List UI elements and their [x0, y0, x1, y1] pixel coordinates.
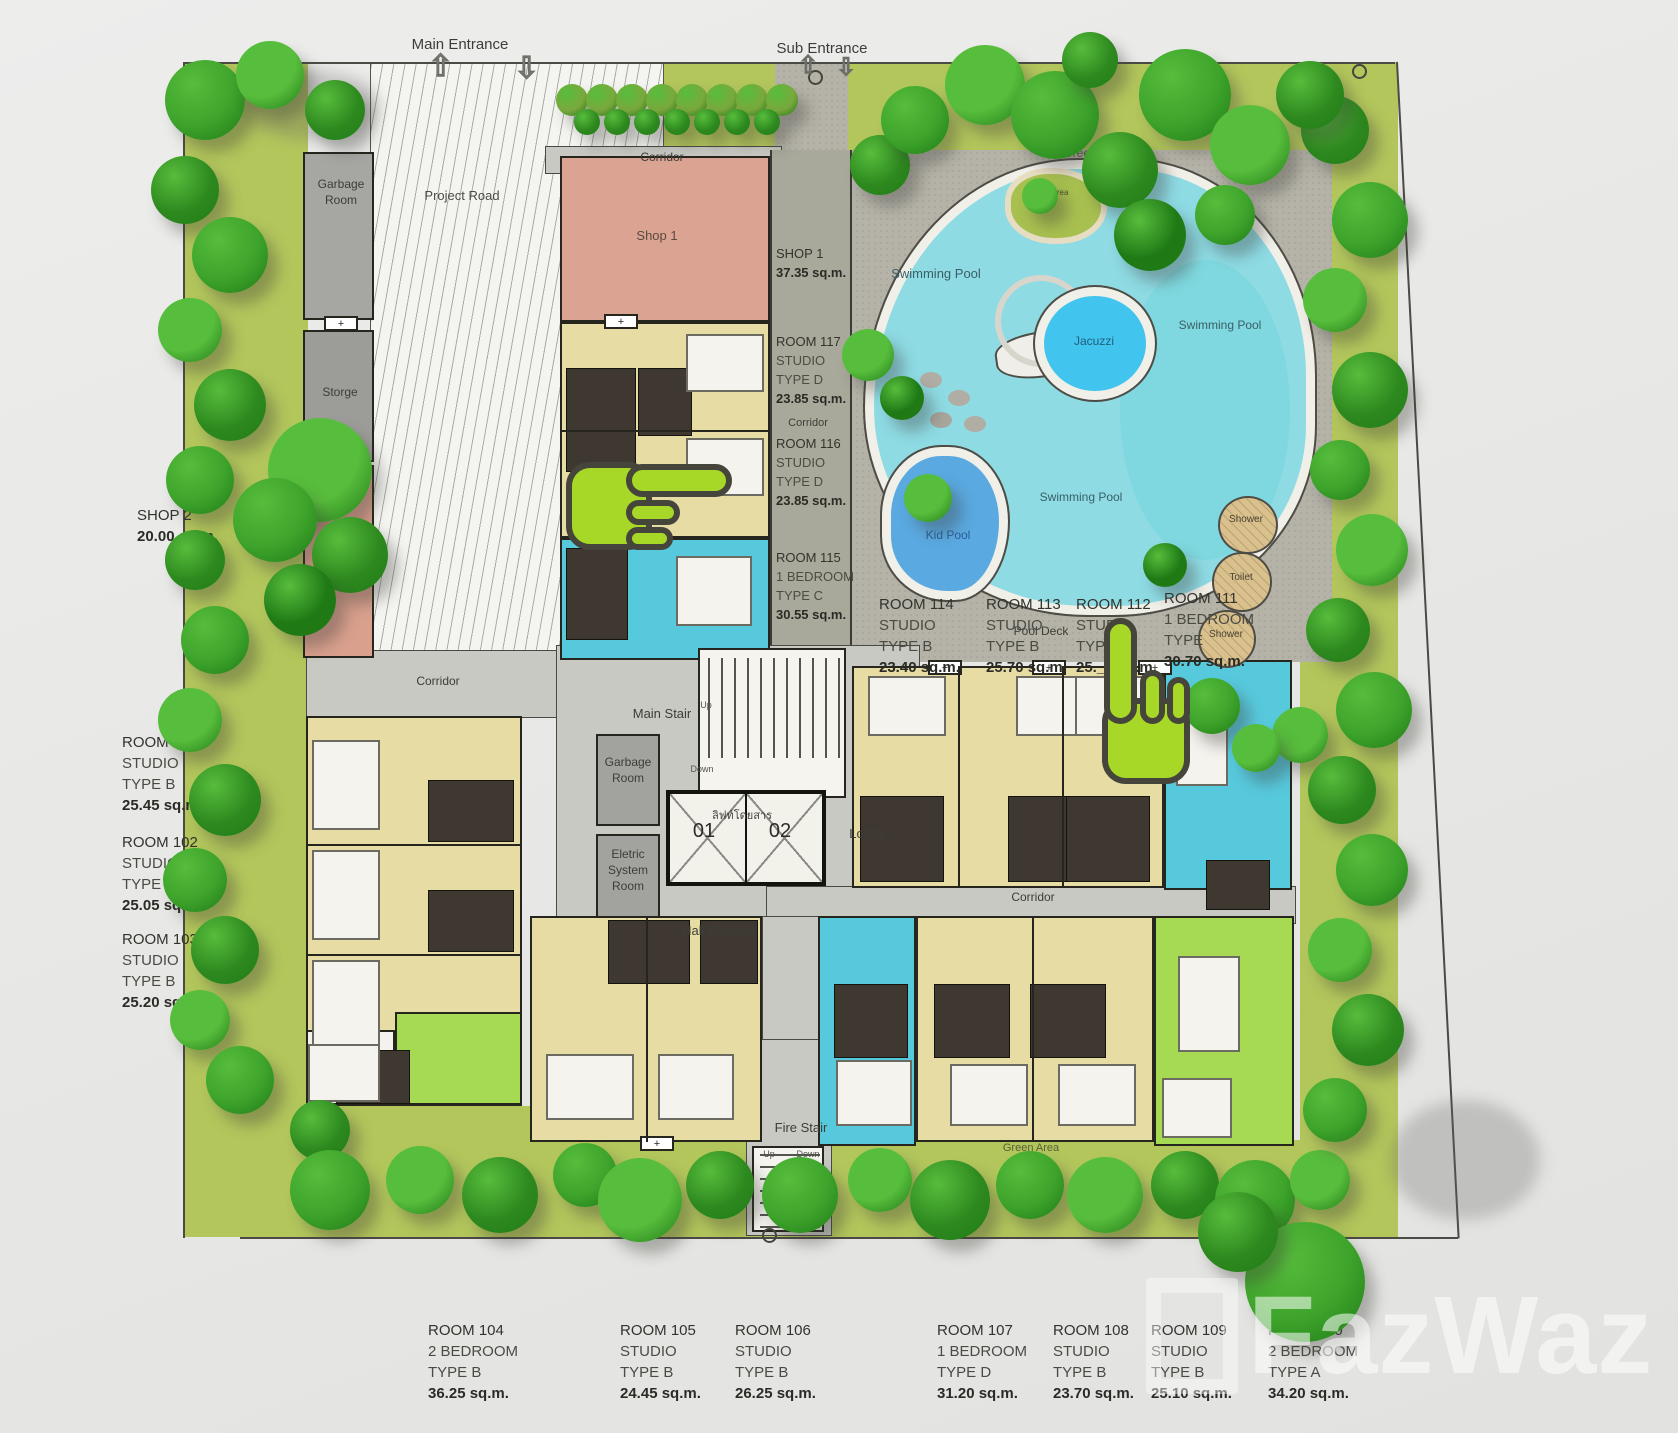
- bed-furniture: [1058, 1064, 1136, 1126]
- garbage-strip-label: Garbage Room: [306, 176, 376, 208]
- wall-line: [1032, 916, 1034, 1142]
- boundary-pin: [762, 1228, 777, 1243]
- tree: [206, 1046, 274, 1114]
- tree: [1303, 268, 1367, 332]
- tree: [724, 109, 750, 135]
- electric-core-label: Eletric System Room: [597, 846, 659, 894]
- wall-line: [560, 430, 770, 432]
- room-116-info: ROOM 116STUDIO TYPE D23.85 sq.m.: [776, 434, 846, 510]
- wall-line: [306, 954, 522, 956]
- fire-stair-up-label: Up: [763, 1149, 775, 1159]
- room-113-info: ROOM 113STUDIO TYPE B25.70 sq.m.: [986, 594, 1067, 678]
- grass-bottom-left: [235, 1106, 535, 1166]
- tree: [1022, 178, 1058, 214]
- bathroom-core: [638, 368, 692, 436]
- hall-elevator-label: Hall Elevator: [682, 923, 756, 938]
- bathroom-core: [428, 780, 514, 842]
- main-stair-down-label: Down: [690, 764, 713, 774]
- tree: [1336, 514, 1408, 586]
- bed-furniture: [1162, 1078, 1232, 1138]
- bathroom-core: [1030, 984, 1106, 1058]
- jacuzzi-label: Jacuzzi: [1074, 334, 1114, 348]
- main-stair-box: [698, 648, 846, 798]
- tree: [574, 109, 600, 135]
- shop1-room-label: Shop 1: [636, 228, 677, 243]
- bathroom-core: [834, 984, 908, 1058]
- bed-furniture: [308, 1044, 380, 1102]
- tree: [181, 606, 249, 674]
- boundary-pin: [1352, 64, 1367, 79]
- tree: [1306, 598, 1370, 662]
- tree: [192, 217, 268, 293]
- tree: [194, 369, 266, 441]
- storage-label: Storge: [322, 385, 357, 399]
- tree: [910, 1160, 990, 1240]
- pointer-hand-right-icon: [566, 448, 734, 552]
- tree: [762, 1157, 838, 1233]
- sub-entrance-label: Sub Entrance: [777, 40, 868, 57]
- bathroom-core: [428, 890, 514, 952]
- bathroom-core: [1206, 860, 1270, 910]
- tree: [1332, 182, 1408, 258]
- tree: [386, 1146, 454, 1214]
- tree: [604, 109, 630, 135]
- tree: [165, 60, 245, 140]
- stepping-stones: [920, 372, 942, 388]
- tree: [1195, 185, 1255, 245]
- tree: [264, 564, 336, 636]
- bathroom-core: [934, 984, 1010, 1058]
- tree: [1062, 32, 1118, 88]
- tree: [1198, 1192, 1278, 1272]
- bed-furniture: [312, 740, 380, 830]
- tree: [158, 688, 222, 752]
- main-stair-up-label: Up: [700, 700, 712, 710]
- tree: [1114, 199, 1186, 271]
- tree: [189, 764, 261, 836]
- tree: [305, 80, 365, 140]
- sub-entrance-out-arrow-icon: ⇩: [836, 56, 856, 80]
- bathroom-core: [1066, 796, 1150, 882]
- tree: [163, 848, 227, 912]
- tree: [1308, 756, 1376, 824]
- room-106-info: ROOM 106STUDIO TYPE B26.25 sq.m.: [735, 1320, 816, 1404]
- tree: [1336, 834, 1408, 906]
- tree: [842, 329, 894, 381]
- wall-line: [958, 666, 960, 886]
- tree: [1067, 1157, 1143, 1233]
- bathroom-core: [608, 920, 690, 984]
- site-plan: ⇧ ⇩ ⇧ ⇩ Main Entrance Sub Entrance Proje…: [0, 0, 1678, 1433]
- room-104-info: ROOM 1042 BEDROOM TYPE B36.25 sq.m.: [428, 1320, 518, 1404]
- tree: [880, 376, 924, 420]
- tree: [166, 446, 234, 514]
- tree: [158, 298, 222, 362]
- corridor-strip-label: Corridor: [788, 417, 828, 429]
- room-117-info: ROOM 117STUDIO TYPE D23.85 sq.m.: [776, 332, 846, 408]
- toilet-label: Toilet: [1229, 572, 1252, 583]
- wall-line: [1062, 666, 1064, 886]
- tree: [233, 478, 317, 562]
- tree: [1310, 440, 1370, 500]
- shop1-info: SHOP 137.35 sq.m.: [776, 244, 846, 282]
- pointer-hand-up-icon: [1088, 616, 1192, 784]
- wall-line: [646, 916, 648, 1142]
- hall-piece: [762, 916, 820, 1040]
- tree: [634, 109, 660, 135]
- bed-furniture: [686, 334, 764, 392]
- corridor-right-label: Corridor: [1011, 890, 1054, 904]
- tree: [996, 1151, 1064, 1219]
- project-road-label: Project Road: [424, 188, 499, 203]
- bed-furniture: [950, 1064, 1028, 1126]
- tree: [1184, 678, 1240, 734]
- tree: [1308, 918, 1372, 982]
- corridor-left-label: Corridor: [416, 674, 459, 688]
- garbage-core-label: Garbage Room: [598, 754, 658, 786]
- main-entrance-out-arrow-icon: ⇩: [514, 54, 539, 84]
- tree: [1332, 994, 1404, 1066]
- tree: [1276, 61, 1344, 129]
- tree: [1303, 1078, 1367, 1142]
- swimming-pool-label-3: Swimming Pool: [1040, 490, 1123, 504]
- left-wing-green-room: [395, 1012, 522, 1105]
- bed-furniture: [312, 960, 380, 1050]
- main-stair-label: Main Stair: [633, 706, 692, 721]
- tree: [1290, 1150, 1350, 1210]
- tree: [1232, 724, 1280, 772]
- elevator-thai-label: ลิฟท์โดยสาร: [712, 806, 772, 824]
- corridor-top-label: Corridor: [640, 150, 683, 164]
- tree: [1332, 352, 1408, 428]
- tree: [686, 1151, 754, 1219]
- bed-furniture: [1178, 956, 1240, 1052]
- kid-pool-label: Kid Pool: [926, 528, 971, 542]
- tree: [1336, 672, 1412, 748]
- lobby-label: Lobby: [849, 826, 884, 841]
- tree: [754, 109, 780, 135]
- tree: [694, 109, 720, 135]
- tree: [881, 86, 949, 154]
- bathroom-core: [566, 548, 628, 640]
- fire-stair-label: Fire Stair: [775, 1120, 828, 1135]
- swimming-pool-label-2: Swimming Pool: [1179, 318, 1262, 332]
- tree: [1210, 105, 1290, 185]
- tree: [1272, 707, 1328, 763]
- tree: [165, 530, 225, 590]
- tree: [664, 109, 690, 135]
- room-108-info: ROOM 108STUDIO TYPE B23.70 sq.m.: [1053, 1320, 1134, 1404]
- wall-line: [306, 844, 522, 846]
- bed-furniture: [658, 1054, 734, 1120]
- door-marker: +: [604, 314, 638, 329]
- tree: [462, 1157, 538, 1233]
- tree: [236, 41, 304, 109]
- elevator-02-label: 02: [769, 820, 791, 843]
- tree: [904, 474, 952, 522]
- room-115-info: ROOM 1151 BEDROOM TYPE C30.55 sq.m.: [776, 548, 854, 624]
- watermark-text: FazWaz: [1248, 1272, 1653, 1399]
- bed-furniture: [836, 1060, 912, 1126]
- sub-entrance-in-arrow-icon: ⇧: [798, 54, 818, 78]
- tree: [1082, 132, 1158, 208]
- tree: [290, 1150, 370, 1230]
- door-marker: +: [324, 316, 358, 331]
- shower-pad: [1218, 496, 1278, 554]
- bed-furniture: [546, 1054, 634, 1120]
- elevator-01-label: 01: [693, 820, 715, 843]
- bed-furniture: [676, 556, 752, 626]
- tree: [598, 1158, 682, 1242]
- swimming-pool-label-1: Swimming Pool: [891, 266, 981, 281]
- main-entrance-label: Main Entrance: [412, 36, 509, 53]
- kid-pool-shape: [882, 447, 1008, 600]
- tree: [151, 156, 219, 224]
- room-114-info: ROOM 114STUDIO TYPE B23.40 sq.m.: [879, 594, 960, 678]
- elevator-shafts: [666, 790, 826, 886]
- tree: [191, 916, 259, 984]
- bed-furniture: [868, 676, 946, 736]
- tree-shadow: [1390, 1100, 1540, 1220]
- tree: [848, 1148, 912, 1212]
- bed-furniture: [312, 850, 380, 940]
- shower-label: Shower: [1229, 514, 1263, 525]
- main-entrance-in-arrow-icon: ⇧: [428, 52, 453, 82]
- tree: [170, 990, 230, 1050]
- boundary-right: [1396, 62, 1460, 1238]
- room-105-info: ROOM 105STUDIO TYPE B24.45 sq.m.: [620, 1320, 701, 1404]
- watermark-logo-icon: [1146, 1278, 1238, 1394]
- watermark: FazWaz: [1146, 1272, 1653, 1399]
- tree: [1143, 543, 1187, 587]
- room-107-info: ROOM 1071 BEDROOM TYPE D31.20 sq.m.: [937, 1320, 1027, 1404]
